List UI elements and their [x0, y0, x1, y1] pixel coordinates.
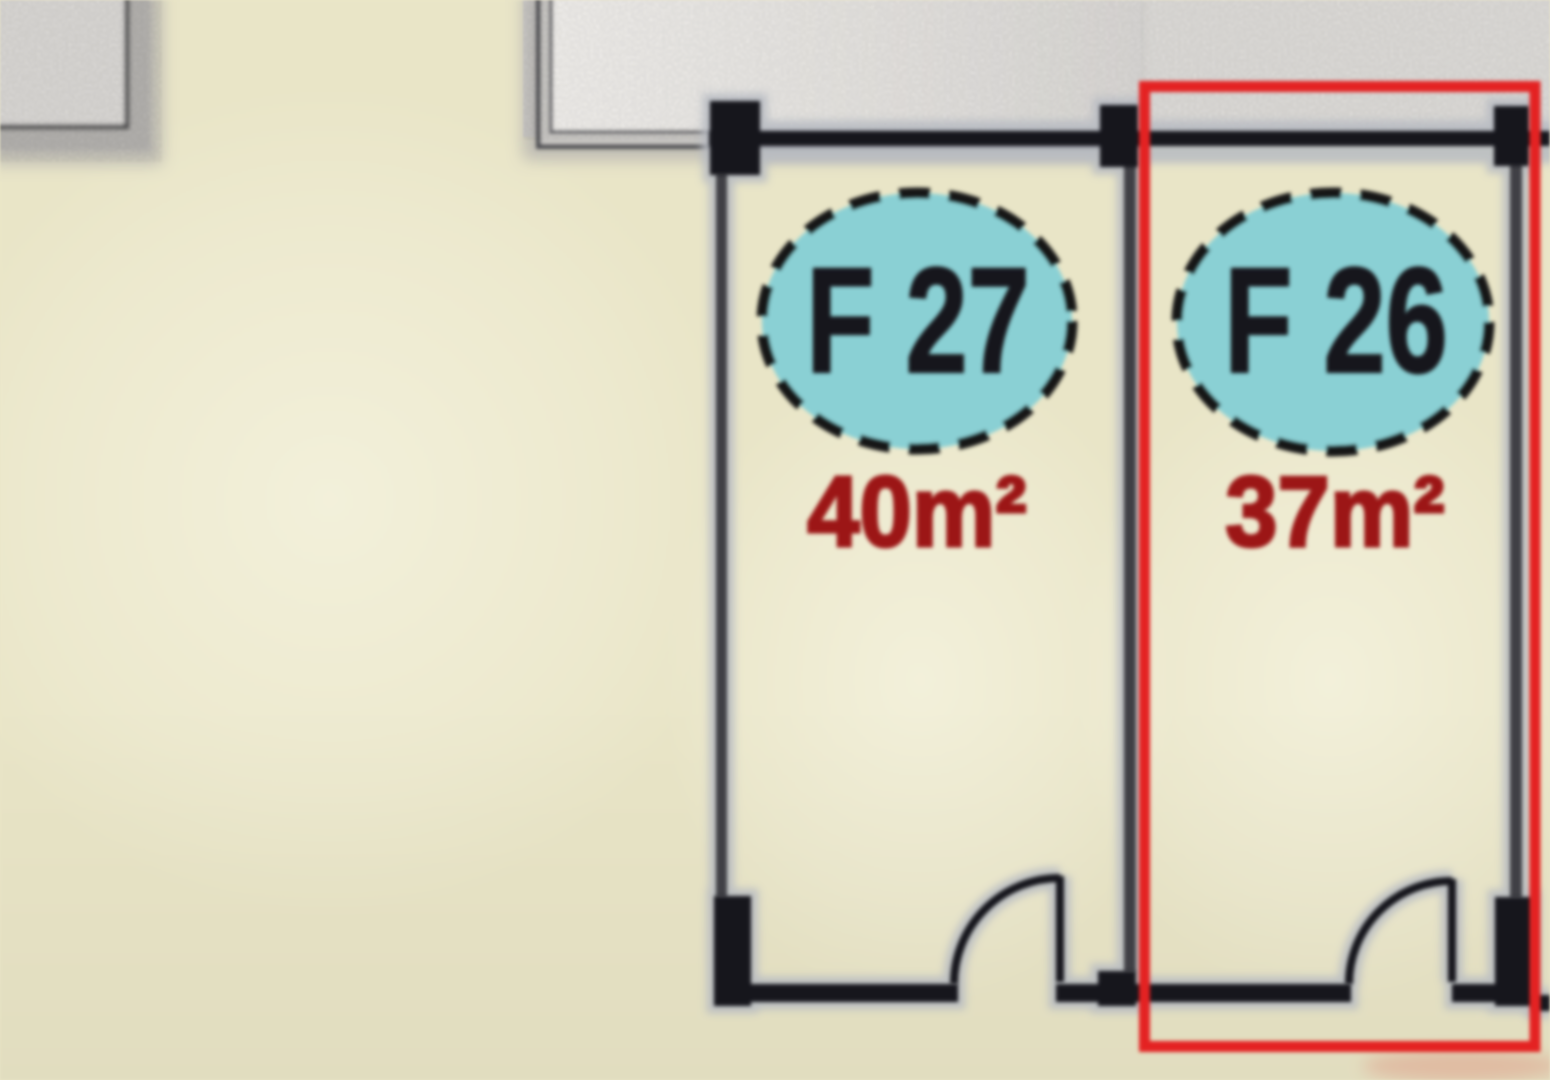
svg-text:40m²: 40m² — [807, 455, 1026, 567]
svg-text:F 27: F 27 — [806, 237, 1030, 405]
svg-text:37m²: 37m² — [1225, 455, 1444, 567]
svg-text:F 26: F 26 — [1224, 237, 1448, 405]
